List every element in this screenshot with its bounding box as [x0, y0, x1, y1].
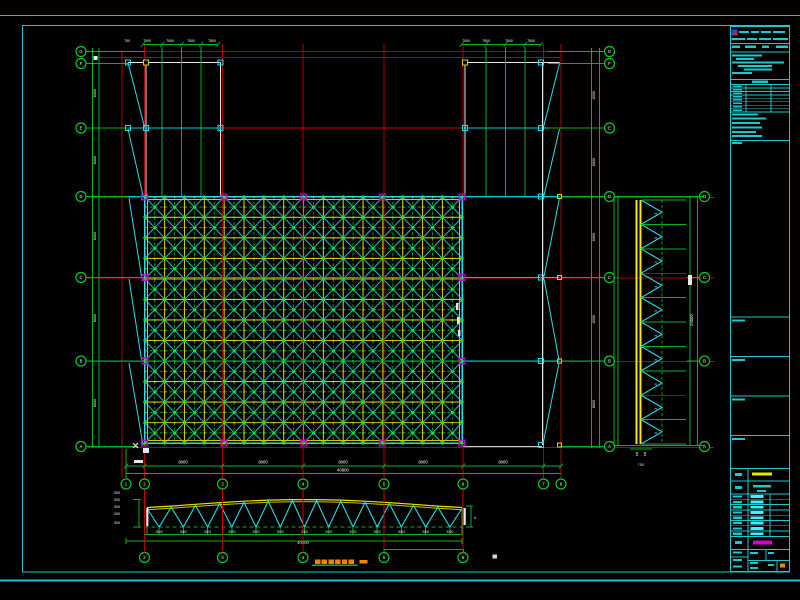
- svg-text:7500: 7500: [187, 39, 195, 43]
- svg-text:750: 750: [124, 39, 130, 43]
- svg-text:G: G: [608, 49, 611, 54]
- svg-text:300: 300: [114, 505, 120, 509]
- svg-text:8000: 8000: [592, 400, 596, 408]
- svg-text:3000: 3000: [422, 530, 429, 534]
- svg-text:5: 5: [644, 452, 647, 458]
- svg-text:300: 300: [114, 512, 120, 516]
- svg-text:8000: 8000: [592, 315, 596, 323]
- svg-text:3000: 3000: [156, 530, 163, 534]
- svg-text:7500: 7500: [208, 39, 216, 43]
- svg-text:D: D: [608, 194, 611, 199]
- svg-text:3000: 3000: [252, 530, 259, 534]
- svg-text:3000: 3000: [180, 530, 187, 534]
- svg-text:7500: 7500: [505, 39, 513, 43]
- svg-text:3000: 3000: [204, 530, 211, 534]
- svg-text:C: C: [608, 275, 611, 280]
- svg-text:8000: 8000: [592, 158, 596, 166]
- svg-text:B: B: [80, 359, 83, 364]
- svg-text:8000: 8000: [93, 314, 97, 322]
- svg-text:8000: 8000: [592, 91, 596, 99]
- svg-text:300: 300: [114, 498, 120, 502]
- svg-text:B: B: [703, 359, 706, 364]
- svg-text:E: E: [608, 126, 611, 131]
- svg-text:D: D: [79, 194, 82, 199]
- svg-text:8000: 8000: [338, 460, 348, 465]
- svg-text:B: B: [608, 359, 611, 364]
- svg-text:7500: 7500: [482, 39, 490, 43]
- svg-text:F: F: [80, 61, 83, 66]
- svg-text:3000: 3000: [446, 530, 453, 534]
- svg-text:3000: 3000: [374, 530, 381, 534]
- svg-text:24500: 24500: [689, 314, 694, 326]
- svg-text:3000: 3000: [277, 530, 284, 534]
- svg-text:A: A: [703, 444, 706, 449]
- svg-text:300: 300: [114, 521, 120, 525]
- svg-text:7500: 7500: [527, 39, 535, 43]
- svg-text:40800: 40800: [337, 468, 349, 473]
- svg-text:8000: 8000: [178, 460, 188, 465]
- svg-text:3000: 3000: [398, 530, 405, 534]
- svg-text:G: G: [79, 49, 82, 54]
- svg-text:8000: 8000: [258, 460, 268, 465]
- svg-text:3000: 3000: [325, 530, 332, 534]
- svg-text:8000: 8000: [93, 232, 97, 240]
- svg-text:8000: 8000: [592, 233, 596, 241]
- svg-text:7500: 7500: [462, 39, 470, 43]
- svg-text:8000: 8000: [498, 460, 508, 465]
- svg-text:8000: 8000: [418, 460, 428, 465]
- svg-text:750: 750: [638, 462, 645, 467]
- svg-text:3000: 3000: [301, 530, 308, 534]
- svg-text:A: A: [80, 444, 83, 449]
- svg-text:A: A: [608, 444, 611, 449]
- svg-text:5: 5: [636, 452, 639, 458]
- svg-text:8000: 8000: [93, 156, 97, 164]
- svg-text:7500: 7500: [166, 39, 174, 43]
- svg-text:F: F: [608, 61, 611, 66]
- svg-text:8000: 8000: [93, 399, 97, 407]
- svg-text:7500: 7500: [143, 39, 151, 43]
- svg-text:8000: 8000: [93, 89, 97, 97]
- svg-text:3000: 3000: [228, 530, 235, 534]
- svg-text:E: E: [80, 126, 83, 131]
- svg-text:C: C: [703, 275, 706, 280]
- svg-text:300: 300: [114, 491, 120, 495]
- svg-text:C: C: [79, 275, 82, 280]
- svg-text:3000: 3000: [349, 530, 356, 534]
